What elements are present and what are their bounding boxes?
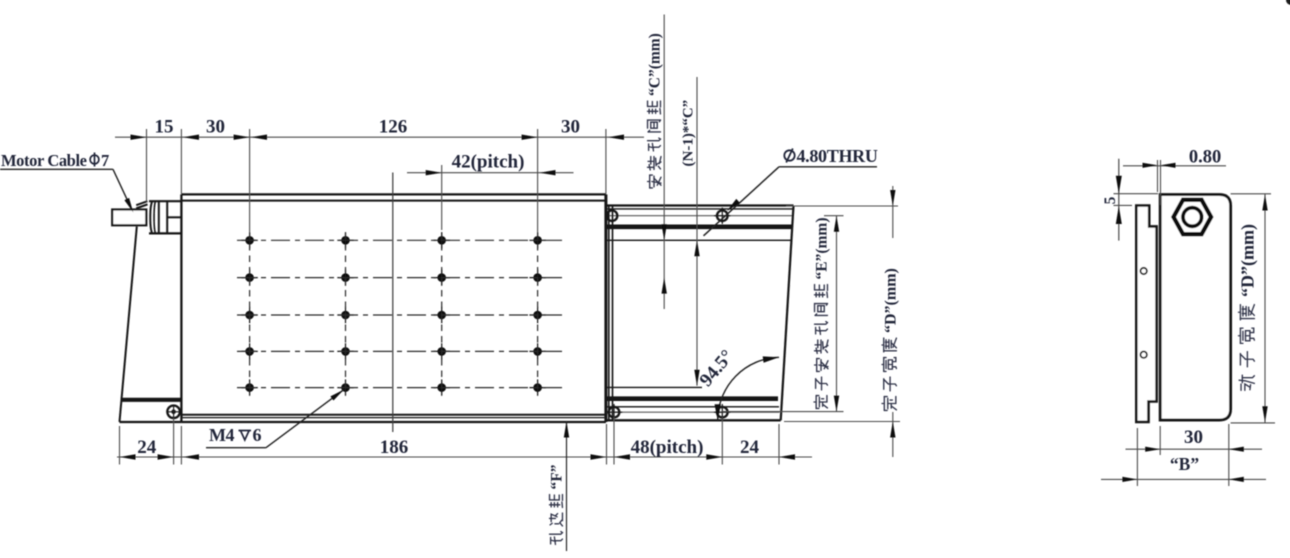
svg-text:“C”(mm): “C”(mm) <box>647 33 664 96</box>
svg-text:6: 6 <box>253 425 262 445</box>
svg-text:(N-1)*“C”: (N-1)*“C” <box>681 100 697 167</box>
svg-text:30: 30 <box>206 117 225 138</box>
svg-text:“F”: “F” <box>549 464 566 489</box>
svg-text:42(pitch): 42(pitch) <box>452 152 525 173</box>
svg-text:7: 7 <box>101 151 109 170</box>
svg-text:Motor Cable: Motor Cable <box>1 151 87 170</box>
svg-text:5: 5 <box>1102 196 1119 204</box>
svg-text:126: 126 <box>379 117 408 138</box>
svg-text:48(pitch): 48(pitch) <box>631 437 704 458</box>
svg-text:24: 24 <box>740 437 760 458</box>
svg-text:“D”(mm): “D”(mm) <box>1238 224 1259 297</box>
svg-text:30: 30 <box>561 117 580 138</box>
svg-text:“D”(mm): “D”(mm) <box>883 268 900 333</box>
svg-text:“B”: “B” <box>1170 454 1199 474</box>
svg-text:24: 24 <box>137 437 157 458</box>
svg-text:4.80THRU: 4.80THRU <box>796 146 877 166</box>
svg-text:30: 30 <box>1184 427 1203 448</box>
svg-text:“E”(mm): “E”(mm) <box>814 218 831 280</box>
svg-text:0.80: 0.80 <box>1189 148 1221 168</box>
svg-text:M4: M4 <box>209 425 234 445</box>
svg-text:186: 186 <box>380 437 409 458</box>
svg-text:15: 15 <box>155 117 174 138</box>
